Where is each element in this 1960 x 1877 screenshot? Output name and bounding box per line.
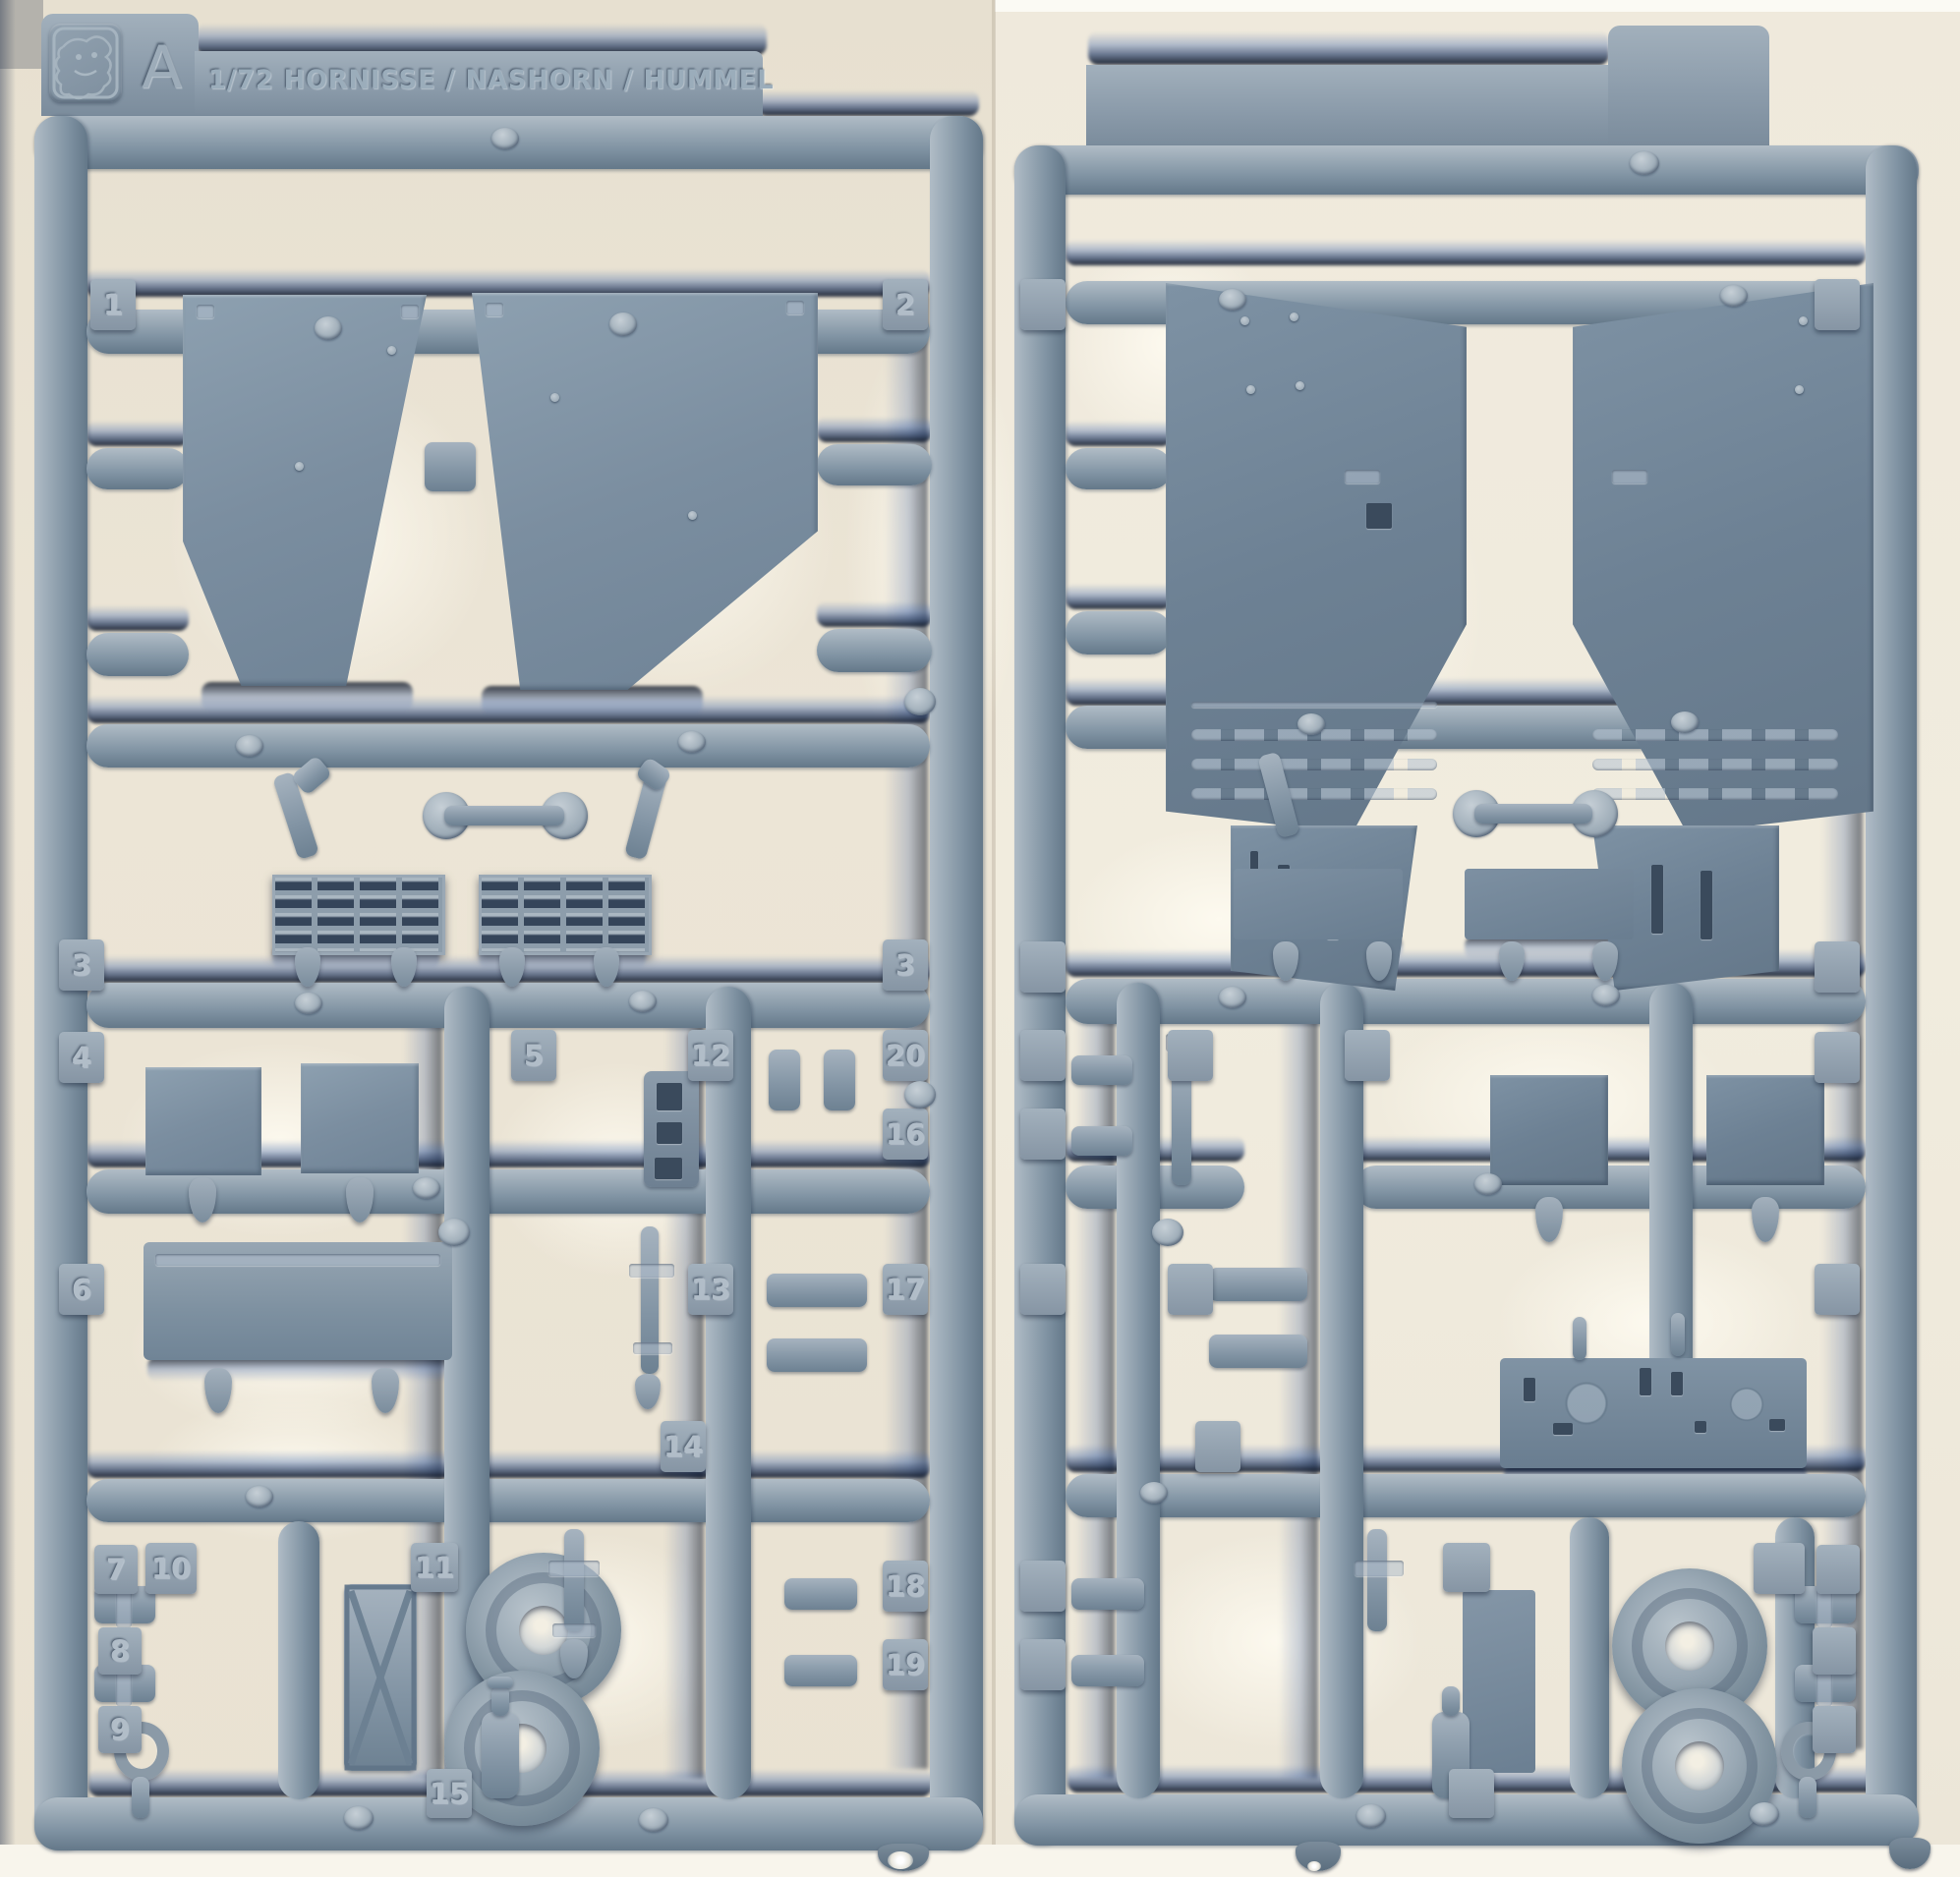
blank-tag [1815, 941, 1860, 993]
gate-dot [344, 1806, 374, 1830]
brand-logo-icon [49, 24, 122, 102]
left-edge-shade [0, 0, 16, 1877]
shadow-v [1279, 993, 1318, 1779]
blank-tag [1815, 279, 1860, 330]
runner [86, 724, 930, 768]
bottle-neck-r [1442, 1686, 1460, 1716]
part-tag: 7 [94, 1545, 138, 1594]
shadow [817, 601, 932, 627]
part-tag: 15 [427, 1769, 472, 1818]
part-tag: 20 [883, 1030, 928, 1081]
shadow [86, 421, 189, 446]
part-tag: 11 [411, 1543, 458, 1592]
runner [86, 983, 930, 1028]
frame-top-r [1014, 145, 1919, 195]
runner-v-r [1320, 983, 1363, 1798]
rod-arm [633, 1342, 672, 1354]
panel-rivet [688, 511, 697, 520]
runner-stub [86, 448, 189, 489]
gate-dot [413, 1177, 440, 1199]
sprue-tab-step-r [1608, 26, 1769, 145]
part-grille-back [1465, 869, 1634, 939]
part-tag: 3 [883, 939, 928, 991]
deck-circle [1563, 1380, 1610, 1427]
part-dumbbell-bar [444, 806, 564, 825]
gate-dot [1152, 1219, 1183, 1246]
shadow-panel [202, 682, 413, 711]
blank-tag [1020, 1030, 1066, 1081]
part-crossed-box-back [1463, 1590, 1535, 1773]
valve-arm [548, 1561, 600, 1576]
part-hatch [301, 1063, 419, 1173]
shadow [1066, 240, 1866, 265]
part-tag: 12 [688, 1030, 733, 1081]
part-connector [767, 1274, 867, 1307]
deck-circle [1728, 1386, 1765, 1423]
runner-v-r [1570, 1517, 1609, 1798]
gate-dot [1720, 285, 1748, 307]
deck-slot [1640, 1368, 1651, 1395]
gate-dot [1140, 1482, 1168, 1504]
panel-rivet [1290, 313, 1298, 321]
rod-arm [629, 1264, 674, 1278]
blank-tag [1449, 1769, 1494, 1818]
gate-dot [236, 735, 263, 757]
gate-dot [315, 316, 342, 340]
part-tag: 8 [98, 1627, 142, 1675]
part-tag: 14 [661, 1421, 706, 1472]
panel-bracket [401, 305, 419, 318]
sprue-tab-r [1086, 65, 1610, 145]
part-valve-r [1367, 1529, 1387, 1631]
panel-rivet [1240, 316, 1249, 325]
runner-stub [86, 633, 189, 676]
frame-right [930, 116, 983, 1850]
shackle-stem [132, 1777, 149, 1818]
part-tag: 6 [59, 1264, 104, 1315]
gate-dot [1750, 1802, 1779, 1826]
periscope-slot [657, 1122, 682, 1144]
blank-tag [1168, 1030, 1213, 1081]
sprue-shapes-layer: 12334512201613176147101189181915 [0, 0, 1960, 1877]
gate-dot [678, 731, 706, 753]
part-tag: 10 [145, 1543, 197, 1594]
blank-tag [1345, 1030, 1390, 1081]
part-connector-r [1209, 1268, 1307, 1301]
part-grille [479, 875, 652, 955]
panel-slot [1366, 503, 1392, 529]
panel-dashrow [1191, 759, 1437, 770]
blank-tag [1813, 1627, 1856, 1675]
part-tag: 19 [883, 1639, 928, 1690]
panel-rivet [1795, 385, 1804, 394]
cupola-hole-r [1665, 1621, 1714, 1671]
shadow [86, 269, 930, 297]
shadow [86, 1450, 930, 1478]
panel-rivet [1799, 316, 1808, 325]
shadow [86, 605, 189, 631]
part-hatch [145, 1067, 261, 1175]
runner-r [1066, 979, 1866, 1024]
part-tag: 9 [98, 1706, 142, 1753]
shadow-tab-r [1088, 31, 1609, 65]
panel-dashrow [1592, 759, 1838, 770]
part-crossed-box [344, 1584, 417, 1771]
shadow [1066, 584, 1172, 609]
sprue-letter: A [142, 33, 204, 108]
part-tag: 2 [883, 279, 928, 330]
periscope-slot [655, 1158, 682, 1179]
part-valve [564, 1529, 584, 1631]
kit-title: 1/72 HORNISSE / NASHORN / HUMMEL [208, 65, 750, 104]
deck-slot [1524, 1378, 1535, 1401]
panel-rivet [550, 393, 559, 402]
runner-stub-r [1066, 448, 1172, 489]
gate-dot [1592, 985, 1620, 1006]
gate-dot [1219, 289, 1246, 311]
panel-dashrow [1592, 788, 1838, 800]
valve-arm-r [1355, 1561, 1404, 1576]
panel-slot [1345, 470, 1380, 483]
blank-tag [1020, 279, 1066, 330]
gate-dot [1297, 713, 1325, 735]
deck-post [1573, 1317, 1586, 1360]
gate-sparkle [1307, 1861, 1321, 1871]
panel-weld-line [1191, 702, 1437, 708]
part-connector-r [1209, 1335, 1307, 1368]
part-grille [272, 875, 445, 955]
panel-slot [1612, 470, 1647, 483]
gate-dot [1630, 151, 1659, 175]
gate-dot [639, 1808, 668, 1832]
scanned-sprue-photo: 12334512201613176147101189181915 A 1/72 … [0, 0, 1960, 1877]
shadow [757, 90, 979, 116]
shadow [817, 417, 932, 442]
part-connector [767, 1338, 867, 1372]
corner-smudge [0, 0, 43, 69]
shadow [1066, 421, 1172, 446]
gate-dot [629, 991, 657, 1012]
deck-slot [1553, 1423, 1573, 1435]
gate-dot [246, 1486, 273, 1507]
part-tag: 1 [90, 279, 136, 330]
part-tag: 18 [883, 1561, 928, 1612]
blank-tag [1020, 1639, 1066, 1690]
panel-bracket [786, 301, 804, 314]
stowage-lip [155, 1254, 440, 1266]
part-connector [784, 1578, 857, 1610]
scan-seam [992, 0, 996, 1877]
runner-stub [817, 629, 932, 672]
shackle-stem-r [1799, 1777, 1816, 1818]
blank-tag [1020, 1561, 1066, 1612]
blank-tag [1443, 1543, 1490, 1592]
part-small-r [1071, 1126, 1132, 1156]
panel-rivet [387, 346, 396, 355]
blank-tag [1168, 1264, 1213, 1315]
blank-tag [1020, 941, 1066, 993]
cupola-hole-r [1675, 1741, 1724, 1791]
gate-dot [1671, 711, 1699, 733]
part-tag: 4 [59, 1032, 104, 1083]
part-tag: 17 [883, 1264, 928, 1315]
part-bottle [482, 1712, 519, 1798]
gate-dot [609, 313, 637, 336]
blank-tag [1813, 1706, 1856, 1753]
runner-r [1066, 1474, 1866, 1517]
gate-dot [904, 1081, 936, 1109]
deck-slot [1671, 1372, 1683, 1395]
gate-dot [295, 993, 322, 1014]
part-small-r [1071, 1055, 1132, 1085]
bottle-cap [488, 1677, 513, 1688]
tail-slot [1701, 871, 1712, 939]
runner-stub [817, 444, 932, 485]
part-connector-r [1071, 1578, 1144, 1610]
scan-right-top-white [995, 0, 1960, 12]
part-small [769, 1050, 800, 1110]
tail-slot [1651, 865, 1663, 934]
valve-arm [552, 1623, 596, 1637]
runner-v [706, 987, 751, 1799]
gate-dot [1219, 987, 1246, 1008]
part-dumbbell-bar [1474, 804, 1592, 824]
part-hatch-r [1490, 1075, 1608, 1185]
part-tag: 13 [688, 1264, 733, 1315]
blank-tag [1020, 1109, 1066, 1160]
gate-dot [491, 128, 519, 149]
deck-post [1671, 1313, 1685, 1356]
blank-tag [1754, 1543, 1805, 1594]
panel-rivet [1296, 381, 1304, 390]
bottle-neck [491, 1686, 509, 1716]
part-connector-r [1071, 1655, 1144, 1686]
part-tag: 16 [883, 1109, 928, 1160]
blank-tag [1195, 1421, 1240, 1472]
part-grille-back [1234, 869, 1403, 939]
panel-rivet [295, 462, 304, 471]
blank-tag [1815, 1264, 1860, 1315]
panel-connector [425, 442, 476, 491]
shadow-panel [482, 686, 703, 715]
deck-slot [1695, 1421, 1706, 1433]
panel-bracket [197, 305, 214, 318]
gate-sparkle [888, 1851, 913, 1869]
gate-dot [1356, 1804, 1386, 1828]
blank-tag [1815, 1032, 1860, 1083]
gate-dot [1474, 1173, 1502, 1195]
panel-dashrow [1191, 788, 1437, 800]
part-small [824, 1050, 855, 1110]
runner [86, 1479, 930, 1522]
panel-dashrow [1592, 729, 1838, 741]
panel-bracket [486, 303, 503, 316]
panel-rivet [1246, 385, 1255, 394]
gate-dot [904, 688, 936, 715]
deck-slot [1769, 1419, 1785, 1431]
runner-stub-r [1066, 611, 1172, 654]
runner-v [278, 1521, 319, 1799]
part-connector [784, 1655, 857, 1686]
part-tag: 3 [59, 939, 104, 991]
part-tag: 5 [511, 1030, 556, 1081]
blank-tag [1816, 1545, 1860, 1594]
part-hatch-r [1706, 1075, 1824, 1185]
gate-dot [438, 1219, 470, 1246]
blank-tag [1020, 1264, 1066, 1315]
periscope-slot [657, 1083, 682, 1110]
